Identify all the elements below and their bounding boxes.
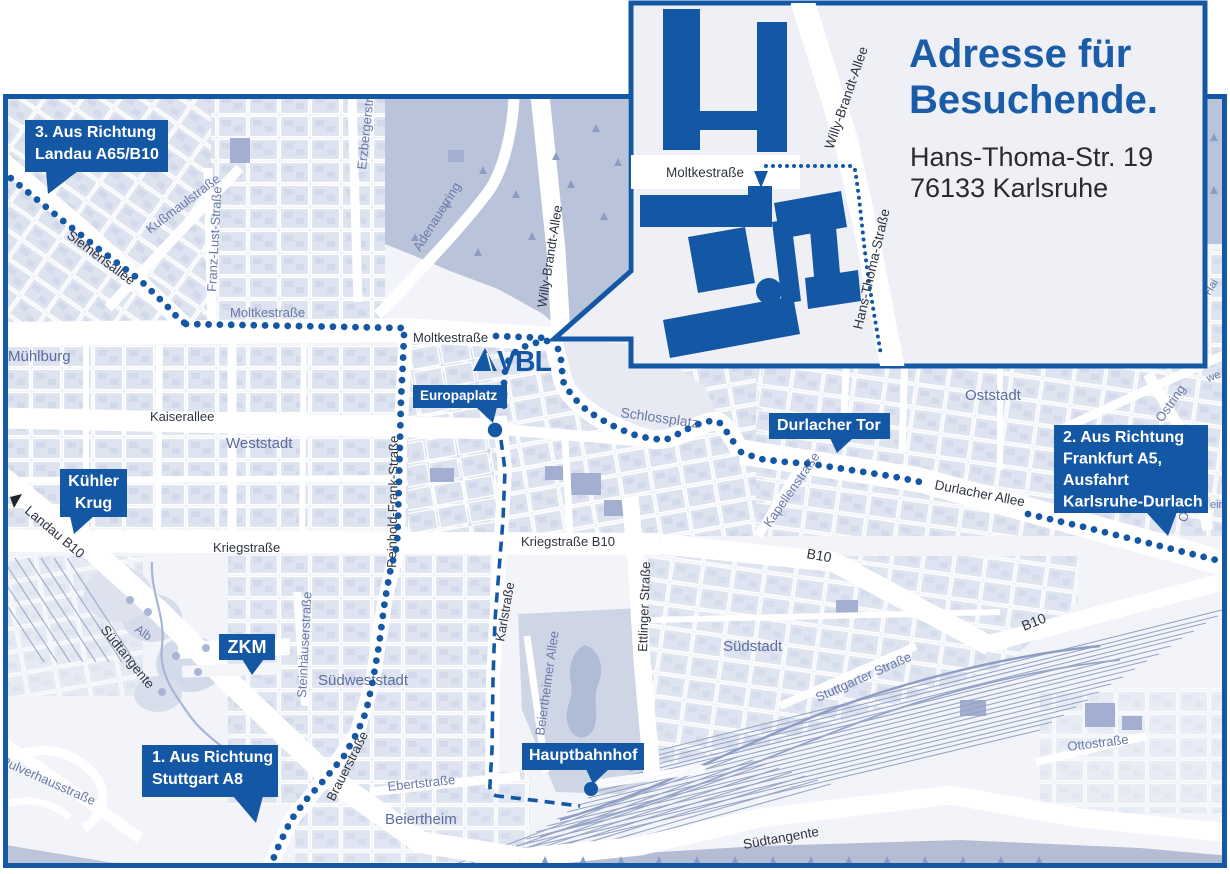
svg-text:Südweststadt: Südweststadt [318,672,409,689]
svg-text:Hauptbahnhof: Hauptbahnhof [529,747,638,764]
svg-text:Südstadt: Südstadt [723,638,783,655]
svg-text:Ettlinger Straße: Ettlinger Straße [635,561,653,652]
svg-text:Mühlburg: Mühlburg [8,348,71,365]
svg-text:Moltkestraße: Moltkestraße [230,305,305,320]
svg-text:Moltkestraße: Moltkestraße [666,165,744,180]
svg-text:Krug: Krug [75,495,112,512]
svg-text:3. Aus Richtung: 3. Aus Richtung [35,124,156,141]
svg-text:Kühler: Kühler [68,473,119,490]
svg-text:Landau A65/B10: Landau A65/B10 [35,146,159,163]
svg-text:Stuttgart A8: Stuttgart A8 [152,771,243,788]
svg-text:Weststadt: Weststadt [226,435,293,452]
svg-text:Europaplatz: Europaplatz [420,388,498,403]
svg-text:VBL: VBL [497,346,552,378]
svg-text:Beiertheim: Beiertheim [385,811,457,828]
svg-text:Frankfurt A5,: Frankfurt A5, [1063,451,1162,468]
svg-text:1. Aus Richtung: 1. Aus Richtung [152,749,273,766]
svg-text:ZKM: ZKM [228,637,267,657]
svg-text:Moltkestraße: Moltkestraße [413,330,488,345]
svg-text:Adresse für: Adresse für [909,32,1131,76]
svg-text:76133 Karlsruhe: 76133 Karlsruhe [910,173,1108,203]
svg-text:Oststadt: Oststadt [965,387,1022,404]
svg-text:Kaiserallee: Kaiserallee [150,409,214,424]
svg-text:2. Aus Richtung: 2. Aus Richtung [1063,429,1184,446]
svg-text:Besuchende.: Besuchende. [909,78,1158,122]
svg-text:Kriegstraße B10: Kriegstraße B10 [521,534,615,549]
svg-text:Hans-Thoma-Str. 19: Hans-Thoma-Str. 19 [910,142,1153,172]
svg-text:Karlsruhe-Durlach: Karlsruhe-Durlach [1063,494,1203,511]
svg-text:Kriegstraße: Kriegstraße [213,540,280,555]
svg-text:Ausfahrt: Ausfahrt [1063,472,1129,489]
svg-text:Durlacher Tor: Durlacher Tor [777,417,881,434]
